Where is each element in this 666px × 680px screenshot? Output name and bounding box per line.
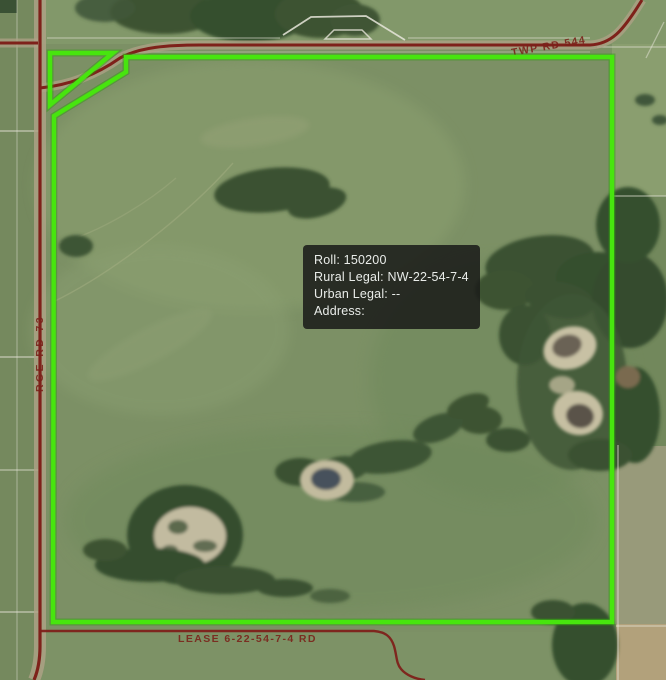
aerial-map-viewport[interactable]: TWP RD 544 RGE RD 73 LEASE 6-22-54-7-4 R… [0,0,666,680]
map-canvas: TWP RD 544 RGE RD 73 LEASE 6-22-54-7-4 R… [0,0,666,680]
range-road-label: RGE RD 73 [34,315,46,392]
lease-road-label: LEASE 6-22-54-7-4 RD [178,633,317,645]
